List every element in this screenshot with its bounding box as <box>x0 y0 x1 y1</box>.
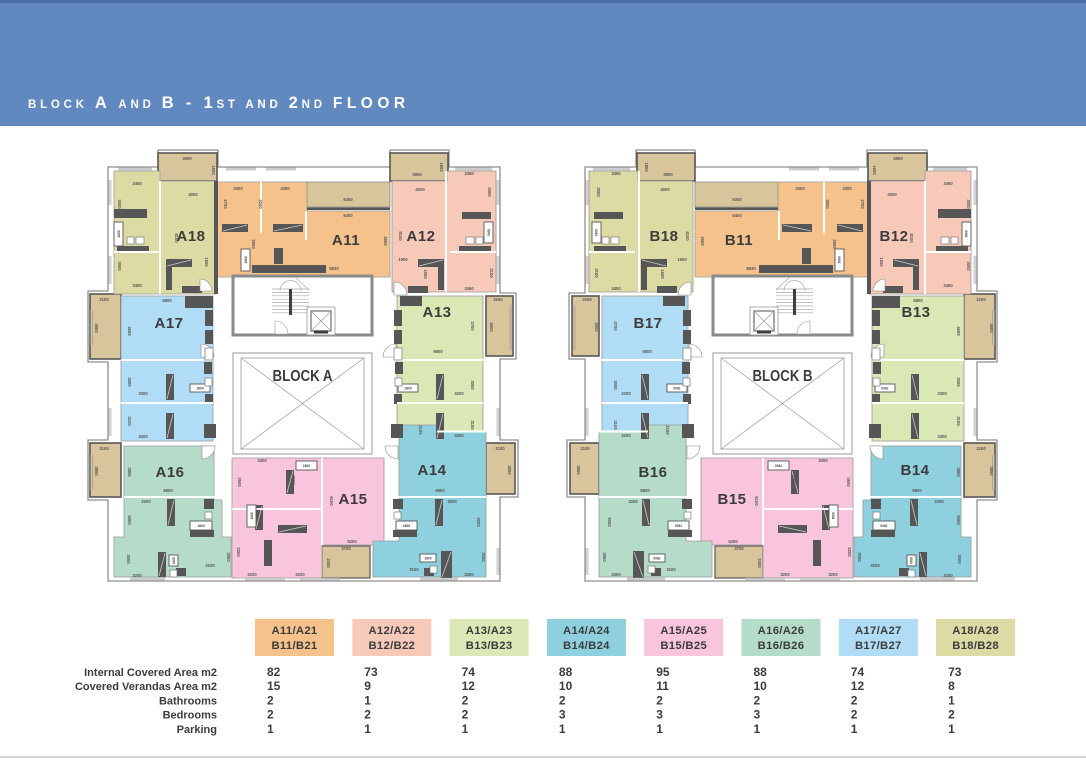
svg-text:A15: A15 <box>338 491 367 508</box>
svg-text:3300: 3300 <box>611 572 621 577</box>
svg-text:B12/B22: B12/B22 <box>368 640 415 652</box>
svg-text:2700: 2700 <box>860 199 865 209</box>
svg-text:2100: 2100 <box>976 446 986 451</box>
svg-text:2100: 2100 <box>99 446 109 451</box>
svg-text:2200: 2200 <box>847 547 852 557</box>
svg-text:3000: 3000 <box>126 554 131 564</box>
svg-text:3200: 3200 <box>132 573 142 578</box>
svg-text:B18: B18 <box>649 228 678 245</box>
svg-text:1: 1 <box>267 722 274 736</box>
svg-text:2: 2 <box>462 708 469 722</box>
svg-text:3000: 3000 <box>966 199 971 209</box>
svg-text:3900: 3900 <box>412 172 422 177</box>
svg-text:2100: 2100 <box>495 446 505 451</box>
svg-text:2100: 2100 <box>580 446 590 451</box>
svg-text:3700: 3700 <box>734 546 744 551</box>
svg-text:3200: 3200 <box>780 572 790 577</box>
svg-text:82: 82 <box>267 665 281 679</box>
svg-text:1800: 1800 <box>117 230 121 238</box>
svg-text:1800: 1800 <box>653 556 661 560</box>
svg-text:3850: 3850 <box>989 466 994 476</box>
svg-text:3450: 3450 <box>611 171 621 176</box>
svg-text:3850: 3850 <box>576 465 581 475</box>
svg-text:2200: 2200 <box>141 499 151 504</box>
svg-text:B14: B14 <box>900 462 929 479</box>
svg-text:8100: 8100 <box>909 233 914 243</box>
svg-text:3300: 3300 <box>818 458 828 463</box>
svg-text:1550: 1550 <box>423 269 428 279</box>
svg-text:3100: 3100 <box>489 268 494 278</box>
svg-text:73: 73 <box>364 665 378 679</box>
svg-text:8830: 8830 <box>746 266 756 271</box>
svg-text:4500: 4500 <box>700 236 705 246</box>
svg-text:1800: 1800 <box>244 256 248 264</box>
svg-text:1800: 1800 <box>250 512 254 520</box>
svg-text:A13: A13 <box>422 304 451 321</box>
svg-text:A15/A25: A15/A25 <box>660 625 707 637</box>
svg-text:2: 2 <box>462 693 469 707</box>
svg-text:3200: 3200 <box>454 433 464 438</box>
svg-text:B13: B13 <box>901 304 930 321</box>
svg-text:3450: 3450 <box>132 283 142 288</box>
svg-text:B11: B11 <box>725 232 753 249</box>
svg-text:3850: 3850 <box>507 465 512 475</box>
svg-text:A12: A12 <box>406 228 435 245</box>
svg-text:3300: 3300 <box>937 391 947 396</box>
svg-text:1800: 1800 <box>909 557 913 565</box>
svg-text:3200: 3200 <box>621 433 631 438</box>
svg-text:3300: 3300 <box>842 186 852 191</box>
svg-text:8: 8 <box>948 679 955 693</box>
svg-text:6800: 6800 <box>433 349 443 354</box>
svg-text:1900: 1900 <box>677 257 687 262</box>
svg-text:3100: 3100 <box>870 563 880 568</box>
svg-text:4000: 4000 <box>887 192 897 197</box>
svg-text:12: 12 <box>462 679 476 693</box>
svg-text:3850: 3850 <box>127 467 132 477</box>
svg-text:1550: 1550 <box>879 257 884 267</box>
svg-text:2100: 2100 <box>418 425 423 435</box>
svg-text:15: 15 <box>267 679 281 693</box>
svg-text:3300: 3300 <box>464 572 474 577</box>
svg-text:1: 1 <box>851 722 858 736</box>
svg-text:8100: 8100 <box>685 231 690 241</box>
svg-text:95: 95 <box>656 665 670 679</box>
svg-text:10: 10 <box>754 679 768 693</box>
svg-text:1800: 1800 <box>964 230 968 238</box>
svg-text:A18: A18 <box>176 228 205 245</box>
svg-text:A14/A24: A14/A24 <box>563 625 610 637</box>
svg-text:2: 2 <box>754 693 761 707</box>
svg-text:3200: 3200 <box>247 572 257 577</box>
svg-text:3300: 3300 <box>280 186 290 191</box>
svg-text:6400: 6400 <box>732 213 742 218</box>
svg-text:3450: 3450 <box>132 181 142 186</box>
svg-text:1: 1 <box>948 722 955 736</box>
svg-text:B15/B25: B15/B25 <box>660 640 707 652</box>
svg-text:3100: 3100 <box>493 297 503 302</box>
svg-text:3200: 3200 <box>454 391 464 396</box>
svg-text:3100: 3100 <box>127 416 132 426</box>
svg-text:1: 1 <box>948 693 955 707</box>
svg-text:4700: 4700 <box>470 321 475 331</box>
svg-text:4000: 4000 <box>660 187 670 192</box>
svg-text:1800: 1800 <box>303 464 311 468</box>
svg-text:3450: 3450 <box>611 286 621 291</box>
svg-text:5200: 5200 <box>347 539 357 544</box>
svg-text:3000: 3000 <box>127 377 132 387</box>
svg-text:3700: 3700 <box>341 546 351 551</box>
svg-text:11: 11 <box>656 679 669 693</box>
svg-text:6300: 6300 <box>343 197 353 202</box>
svg-text:2900: 2900 <box>251 239 256 249</box>
svg-text:2: 2 <box>267 708 274 722</box>
svg-text:3000: 3000 <box>857 552 862 562</box>
svg-text:3500: 3500 <box>237 477 242 487</box>
svg-text:2400: 2400 <box>757 558 762 568</box>
svg-text:3100: 3100 <box>582 297 592 302</box>
svg-text:3000: 3000 <box>596 187 601 197</box>
svg-text:3: 3 <box>559 708 566 722</box>
svg-text:1800: 1800 <box>880 524 888 528</box>
svg-text:1: 1 <box>364 722 371 736</box>
svg-text:1800: 1800 <box>487 229 491 237</box>
svg-text:5000: 5000 <box>127 515 132 525</box>
svg-text:3300: 3300 <box>257 458 267 463</box>
svg-text:5200: 5200 <box>728 539 738 544</box>
svg-text:B17: B17 <box>633 315 662 332</box>
svg-text:A11/A21: A11/A21 <box>271 625 317 637</box>
svg-text:74: 74 <box>851 665 865 679</box>
svg-text:74: 74 <box>462 665 476 679</box>
svg-text:BLOCK A: BLOCK A <box>273 368 333 385</box>
svg-text:4600: 4600 <box>989 323 994 333</box>
svg-text:B12: B12 <box>879 228 908 245</box>
svg-text:6100: 6100 <box>329 496 334 506</box>
svg-text:A16: A16 <box>155 464 184 481</box>
svg-text:3100: 3100 <box>613 420 618 430</box>
svg-text:3000: 3000 <box>226 552 231 562</box>
svg-text:A17/A27: A17/A27 <box>855 625 902 637</box>
svg-text:3300: 3300 <box>138 434 148 439</box>
svg-text:6800: 6800 <box>912 488 922 493</box>
svg-text:2400: 2400 <box>326 558 331 568</box>
svg-text:6800: 6800 <box>913 298 923 303</box>
svg-text:3200: 3200 <box>828 572 838 577</box>
svg-text:3000: 3000 <box>966 261 971 271</box>
svg-text:1800: 1800 <box>197 524 205 528</box>
svg-text:1800: 1800 <box>196 386 204 390</box>
svg-text:6800: 6800 <box>162 298 172 303</box>
svg-text:3100: 3100 <box>205 563 215 568</box>
svg-text:B16: B16 <box>638 464 667 481</box>
svg-text:3300: 3300 <box>233 186 243 191</box>
svg-text:3450: 3450 <box>464 286 474 291</box>
svg-text:2: 2 <box>851 708 858 722</box>
svg-text:A14: A14 <box>417 462 446 479</box>
svg-text:1800: 1800 <box>172 557 176 565</box>
svg-text:88: 88 <box>754 665 768 679</box>
svg-text:1800: 1800 <box>673 386 681 390</box>
svg-text:3850: 3850 <box>94 466 99 476</box>
svg-text:3: 3 <box>754 708 761 722</box>
svg-text:3200: 3200 <box>621 391 631 396</box>
svg-text:2100: 2100 <box>976 297 986 302</box>
svg-text:4600: 4600 <box>127 326 132 336</box>
svg-text:3200: 3200 <box>258 199 263 209</box>
svg-text:2100: 2100 <box>99 297 109 302</box>
svg-text:4000: 4000 <box>188 192 198 197</box>
svg-text:2: 2 <box>948 708 955 722</box>
svg-text:3500: 3500 <box>846 477 851 487</box>
svg-text:6800: 6800 <box>642 349 652 354</box>
svg-text:B15: B15 <box>717 491 746 508</box>
svg-text:BLOCK B: BLOCK B <box>753 368 813 385</box>
svg-text:1800: 1800 <box>439 162 444 172</box>
svg-text:6300: 6300 <box>732 197 742 202</box>
svg-text:10: 10 <box>559 679 573 693</box>
svg-text:1800: 1800 <box>594 229 598 237</box>
svg-text:1900: 1900 <box>398 257 408 262</box>
svg-text:5000: 5000 <box>956 515 961 525</box>
svg-text:1550: 1550 <box>660 269 665 279</box>
svg-text:1800: 1800 <box>424 556 432 560</box>
svg-text:3100: 3100 <box>666 567 676 572</box>
svg-text:3100: 3100 <box>409 567 419 572</box>
svg-text:3900: 3900 <box>663 172 673 177</box>
svg-text:4700: 4700 <box>613 321 618 331</box>
svg-text:6800: 6800 <box>163 488 173 493</box>
svg-text:1800: 1800 <box>644 162 649 172</box>
svg-text:3000: 3000 <box>957 554 962 564</box>
svg-text:4000: 4000 <box>415 187 425 192</box>
svg-text:8830: 8830 <box>329 266 339 271</box>
svg-text:3450: 3450 <box>943 181 953 186</box>
svg-text:B16/B26: B16/B26 <box>758 640 805 652</box>
svg-text:6100: 6100 <box>754 496 759 506</box>
svg-text:6800: 6800 <box>435 488 445 493</box>
svg-text:B17/B27: B17/B27 <box>855 640 902 652</box>
svg-text:6800: 6800 <box>640 488 650 493</box>
svg-text:1: 1 <box>462 722 469 736</box>
svg-text:Bathrooms: Bathrooms <box>159 695 217 707</box>
svg-text:3600: 3600 <box>267 549 272 559</box>
svg-text:3450: 3450 <box>464 171 474 176</box>
svg-text:1800: 1800 <box>403 524 411 528</box>
svg-text:Bedrooms: Bedrooms <box>163 710 217 722</box>
svg-text:A16/A26: A16/A26 <box>758 625 805 637</box>
svg-text:4600: 4600 <box>94 323 99 333</box>
svg-text:1600: 1600 <box>872 165 877 175</box>
svg-text:1800: 1800 <box>837 256 841 264</box>
svg-text:3000: 3000 <box>602 552 607 562</box>
svg-text:4500: 4500 <box>383 236 388 246</box>
svg-text:1550: 1550 <box>204 257 209 267</box>
svg-text:3000: 3000 <box>470 380 475 390</box>
svg-text:2900: 2900 <box>832 239 837 249</box>
svg-text:1800: 1800 <box>831 512 835 520</box>
svg-text:3100: 3100 <box>470 420 475 430</box>
svg-text:B18/B28: B18/B28 <box>952 640 999 652</box>
svg-text:1: 1 <box>754 722 761 736</box>
svg-text:1800: 1800 <box>881 386 889 390</box>
svg-text:2200: 2200 <box>934 499 944 504</box>
svg-text:Covered Verandas Area m2: Covered Verandas Area m2 <box>75 681 217 693</box>
svg-text:1800: 1800 <box>675 524 683 528</box>
svg-text:9: 9 <box>364 679 371 693</box>
svg-text:2900: 2900 <box>792 475 797 485</box>
svg-text:6400: 6400 <box>343 213 353 218</box>
svg-text:3000: 3000 <box>481 552 486 562</box>
svg-text:1: 1 <box>559 722 566 736</box>
svg-text:3200: 3200 <box>943 573 953 578</box>
svg-text:3900: 3900 <box>893 156 903 161</box>
svg-text:1600: 1600 <box>211 165 216 175</box>
svg-text:3100: 3100 <box>956 416 961 426</box>
svg-text:3900: 3900 <box>182 156 192 161</box>
svg-text:2: 2 <box>364 708 371 722</box>
svg-text:3000: 3000 <box>117 199 122 209</box>
svg-text:3600: 3600 <box>816 549 821 559</box>
svg-text:2: 2 <box>656 693 663 707</box>
svg-text:1: 1 <box>364 693 371 707</box>
svg-text:3000: 3000 <box>607 517 612 527</box>
svg-text:3450: 3450 <box>943 283 953 288</box>
svg-text:3850: 3850 <box>956 467 961 477</box>
svg-text:8100: 8100 <box>398 231 403 241</box>
svg-text:4600: 4600 <box>956 326 961 336</box>
svg-text:4600: 4600 <box>594 322 599 332</box>
svg-text:1: 1 <box>656 722 663 736</box>
svg-text:2900: 2900 <box>291 475 296 485</box>
svg-text:3000: 3000 <box>613 380 618 390</box>
svg-text:1800: 1800 <box>775 464 783 468</box>
svg-text:88: 88 <box>559 665 573 679</box>
svg-text:A12/A22: A12/A22 <box>368 625 415 637</box>
svg-text:3300: 3300 <box>138 391 148 396</box>
svg-text:3200: 3200 <box>447 499 457 504</box>
svg-text:3000: 3000 <box>487 187 492 197</box>
svg-text:3100: 3100 <box>594 268 599 278</box>
svg-text:4600: 4600 <box>489 322 494 332</box>
svg-text:A17: A17 <box>154 315 183 332</box>
svg-text:B13/B23: B13/B23 <box>466 640 513 652</box>
svg-text:2700: 2700 <box>223 199 228 209</box>
svg-text:3000: 3000 <box>956 377 961 387</box>
svg-text:3000: 3000 <box>117 261 122 271</box>
svg-text:B11/B21: B11/B21 <box>271 640 317 652</box>
svg-text:B14/B24: B14/B24 <box>563 640 610 652</box>
svg-text:1800: 1800 <box>404 386 412 390</box>
svg-text:2: 2 <box>267 693 274 707</box>
svg-text:73: 73 <box>948 665 962 679</box>
svg-text:3200: 3200 <box>628 499 638 504</box>
svg-text:12: 12 <box>851 679 865 693</box>
svg-text:3200: 3200 <box>295 572 305 577</box>
svg-text:2100: 2100 <box>665 425 670 435</box>
svg-text:A13/A23: A13/A23 <box>466 625 513 637</box>
svg-text:A11: A11 <box>332 232 360 249</box>
svg-text:2: 2 <box>559 693 566 707</box>
svg-text:3300: 3300 <box>795 186 805 191</box>
svg-text:3: 3 <box>656 708 663 722</box>
svg-text:3300: 3300 <box>937 434 947 439</box>
svg-text:3000: 3000 <box>476 517 481 527</box>
svg-text:Internal Covered Area m2: Internal Covered Area m2 <box>84 667 217 679</box>
svg-text:A18/A28: A18/A28 <box>952 625 999 637</box>
svg-text:3200: 3200 <box>825 199 830 209</box>
svg-text:2200: 2200 <box>236 547 241 557</box>
svg-text:Parking: Parking <box>177 724 217 736</box>
svg-text:2: 2 <box>851 693 858 707</box>
